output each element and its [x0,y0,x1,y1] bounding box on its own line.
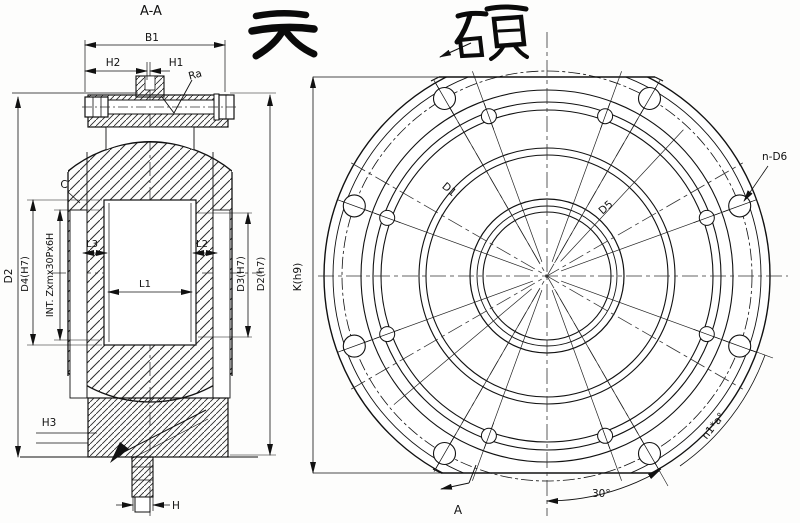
dim-d3-label: D3(H7) [236,256,247,292]
dim-d2-left-label: D2 [3,269,15,284]
dim-b1-label: B1 [145,32,159,44]
top-cap [82,94,238,150]
dim-d4-label: D4(H7) [20,256,31,292]
dim-h2-label: H2 [106,57,121,69]
left-bolt-slot [70,210,87,398]
dim-d2-right-label: D2(h7) [256,257,267,292]
dim-h3-label: H3 [42,417,57,429]
dim-thread-label: INT. Zxmx30Px6H [45,233,56,317]
threaded-bore [104,200,196,345]
dim-30deg-label: 30° [592,488,611,500]
bottom-stem [132,457,153,497]
dim-h-label: H [172,500,180,512]
bearing-flange-drawing: A-A B1 H2 H1 Ra C D2 D4(H7) INT. Zxmx30P… [0,0,800,523]
dim-n-d6-label: n-D6 [762,151,788,163]
dim-l2-label: L2 [196,239,208,250]
dim-l1-label: L1 [139,279,151,290]
dim-c-label: C [60,179,67,191]
top-boss [136,76,164,97]
char-tian [252,13,314,56]
dim-l3-label: L3 [86,239,98,250]
dim-ra-label: Ra [187,68,203,83]
base [20,398,258,512]
section-arrow-label: A [454,503,463,517]
right-bolt-slot [213,210,230,398]
dim-h1-label: H1 [169,57,184,69]
section-title: A-A [140,4,162,19]
dim-k-label: K(h9) [292,263,304,291]
front-view [313,32,788,516]
engineering-drawing-canvas: 天硕 [0,0,800,523]
